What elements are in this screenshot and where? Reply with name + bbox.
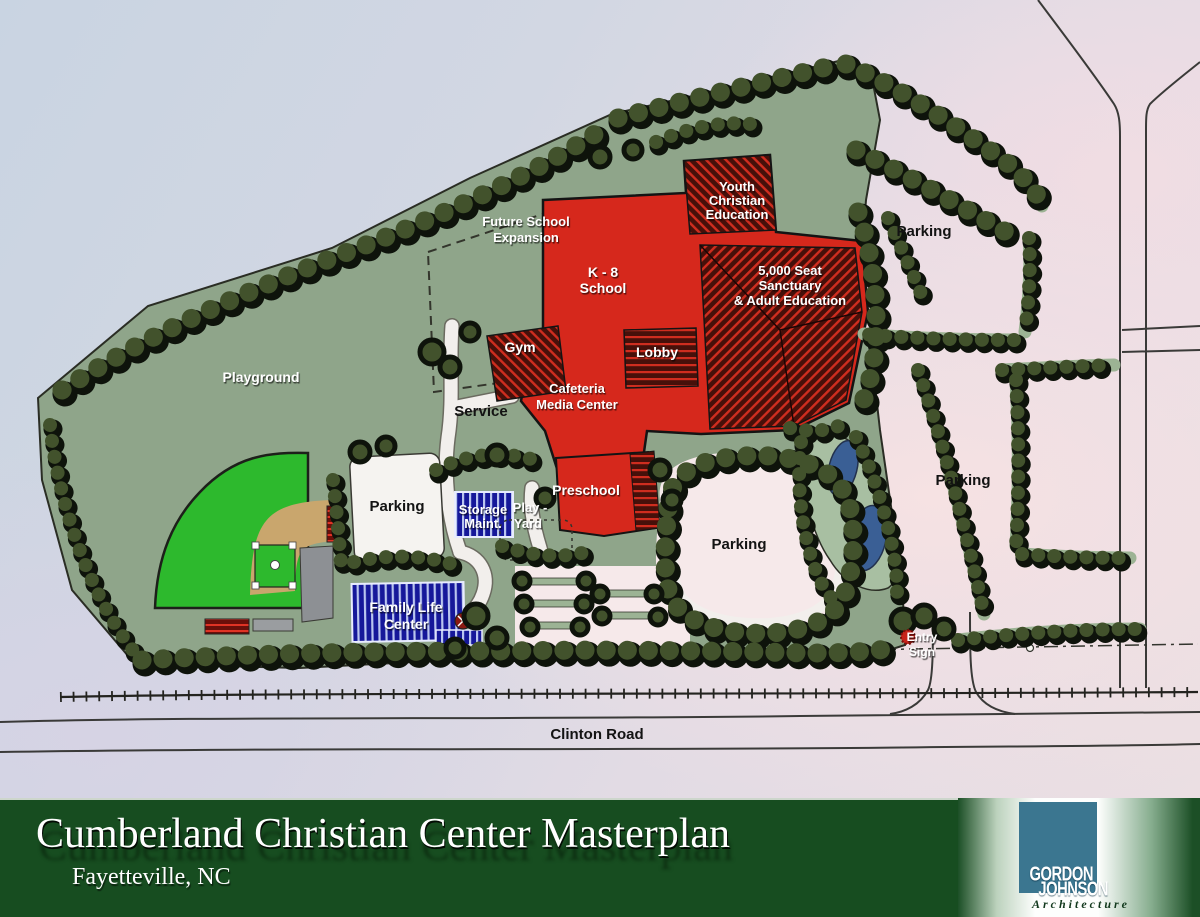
label-youth-2: Christian bbox=[709, 193, 765, 208]
label-storage-1: Storage bbox=[459, 502, 507, 517]
masterplan-rendering: Playground Future School Expansion K - 8… bbox=[0, 0, 1200, 917]
label-family-life-1: Family Life bbox=[369, 599, 442, 615]
label-service: Service bbox=[454, 403, 507, 420]
label-clinton-road: Clinton Road bbox=[550, 726, 643, 743]
label-entry-sign-1: Entry bbox=[907, 630, 938, 644]
plan-title: Cumberland Christian Center Masterplan bbox=[36, 810, 730, 858]
label-sanctuary-2: Sanctuary bbox=[759, 278, 823, 293]
label-future-school-1: Future School bbox=[482, 214, 569, 229]
label-play-yard-1: Play - bbox=[513, 500, 548, 515]
site-plan-map: Playground Future School Expansion K - 8… bbox=[0, 0, 1200, 800]
label-lobby: Lobby bbox=[636, 344, 678, 360]
railroad-track bbox=[60, 692, 1198, 697]
label-family-life-2: Center bbox=[384, 616, 429, 632]
label-cafeteria-1: Cafeteria bbox=[549, 381, 605, 396]
label-playground: Playground bbox=[222, 369, 299, 385]
label-k8-1: K - 8 bbox=[588, 264, 619, 280]
label-k8-2: School bbox=[580, 280, 627, 296]
label-parking-northeast: Parking bbox=[896, 223, 951, 240]
label-youth-3: Education bbox=[706, 207, 769, 222]
title-bar: Cumberland Christian Center Masterplan F… bbox=[0, 798, 1200, 917]
label-entry-sign-2: Sign bbox=[909, 645, 935, 659]
logo-discipline: Architecture bbox=[996, 897, 1166, 912]
label-parking-east: Parking bbox=[935, 472, 990, 489]
label-youth-1: Youth bbox=[719, 179, 755, 194]
pitchers-mound bbox=[271, 561, 280, 570]
label-play-yard-2: Yard bbox=[514, 516, 542, 531]
dugout-pad bbox=[300, 546, 333, 622]
plan-location: Fayetteville, NC bbox=[72, 864, 231, 891]
label-parking-central: Parking bbox=[711, 536, 766, 553]
label-preschool: Preschool bbox=[552, 482, 620, 498]
label-sanctuary-3: & Adult Education bbox=[734, 293, 846, 308]
pad-south bbox=[253, 619, 293, 631]
site-plan-svg: Playground Future School Expansion K - 8… bbox=[0, 0, 1200, 800]
label-cafeteria-2: Media Center bbox=[536, 397, 618, 412]
label-future-school-2: Expansion bbox=[493, 230, 559, 245]
bleacher-south bbox=[205, 619, 249, 634]
architect-logo: GORDON JOHNSON Architecture bbox=[958, 798, 1200, 917]
label-storage-2: Maint. bbox=[464, 516, 502, 531]
label-sanctuary-1: 5,000 Seat bbox=[758, 263, 822, 278]
label-gym: Gym bbox=[504, 339, 535, 355]
label-parking-west: Parking bbox=[369, 498, 424, 515]
